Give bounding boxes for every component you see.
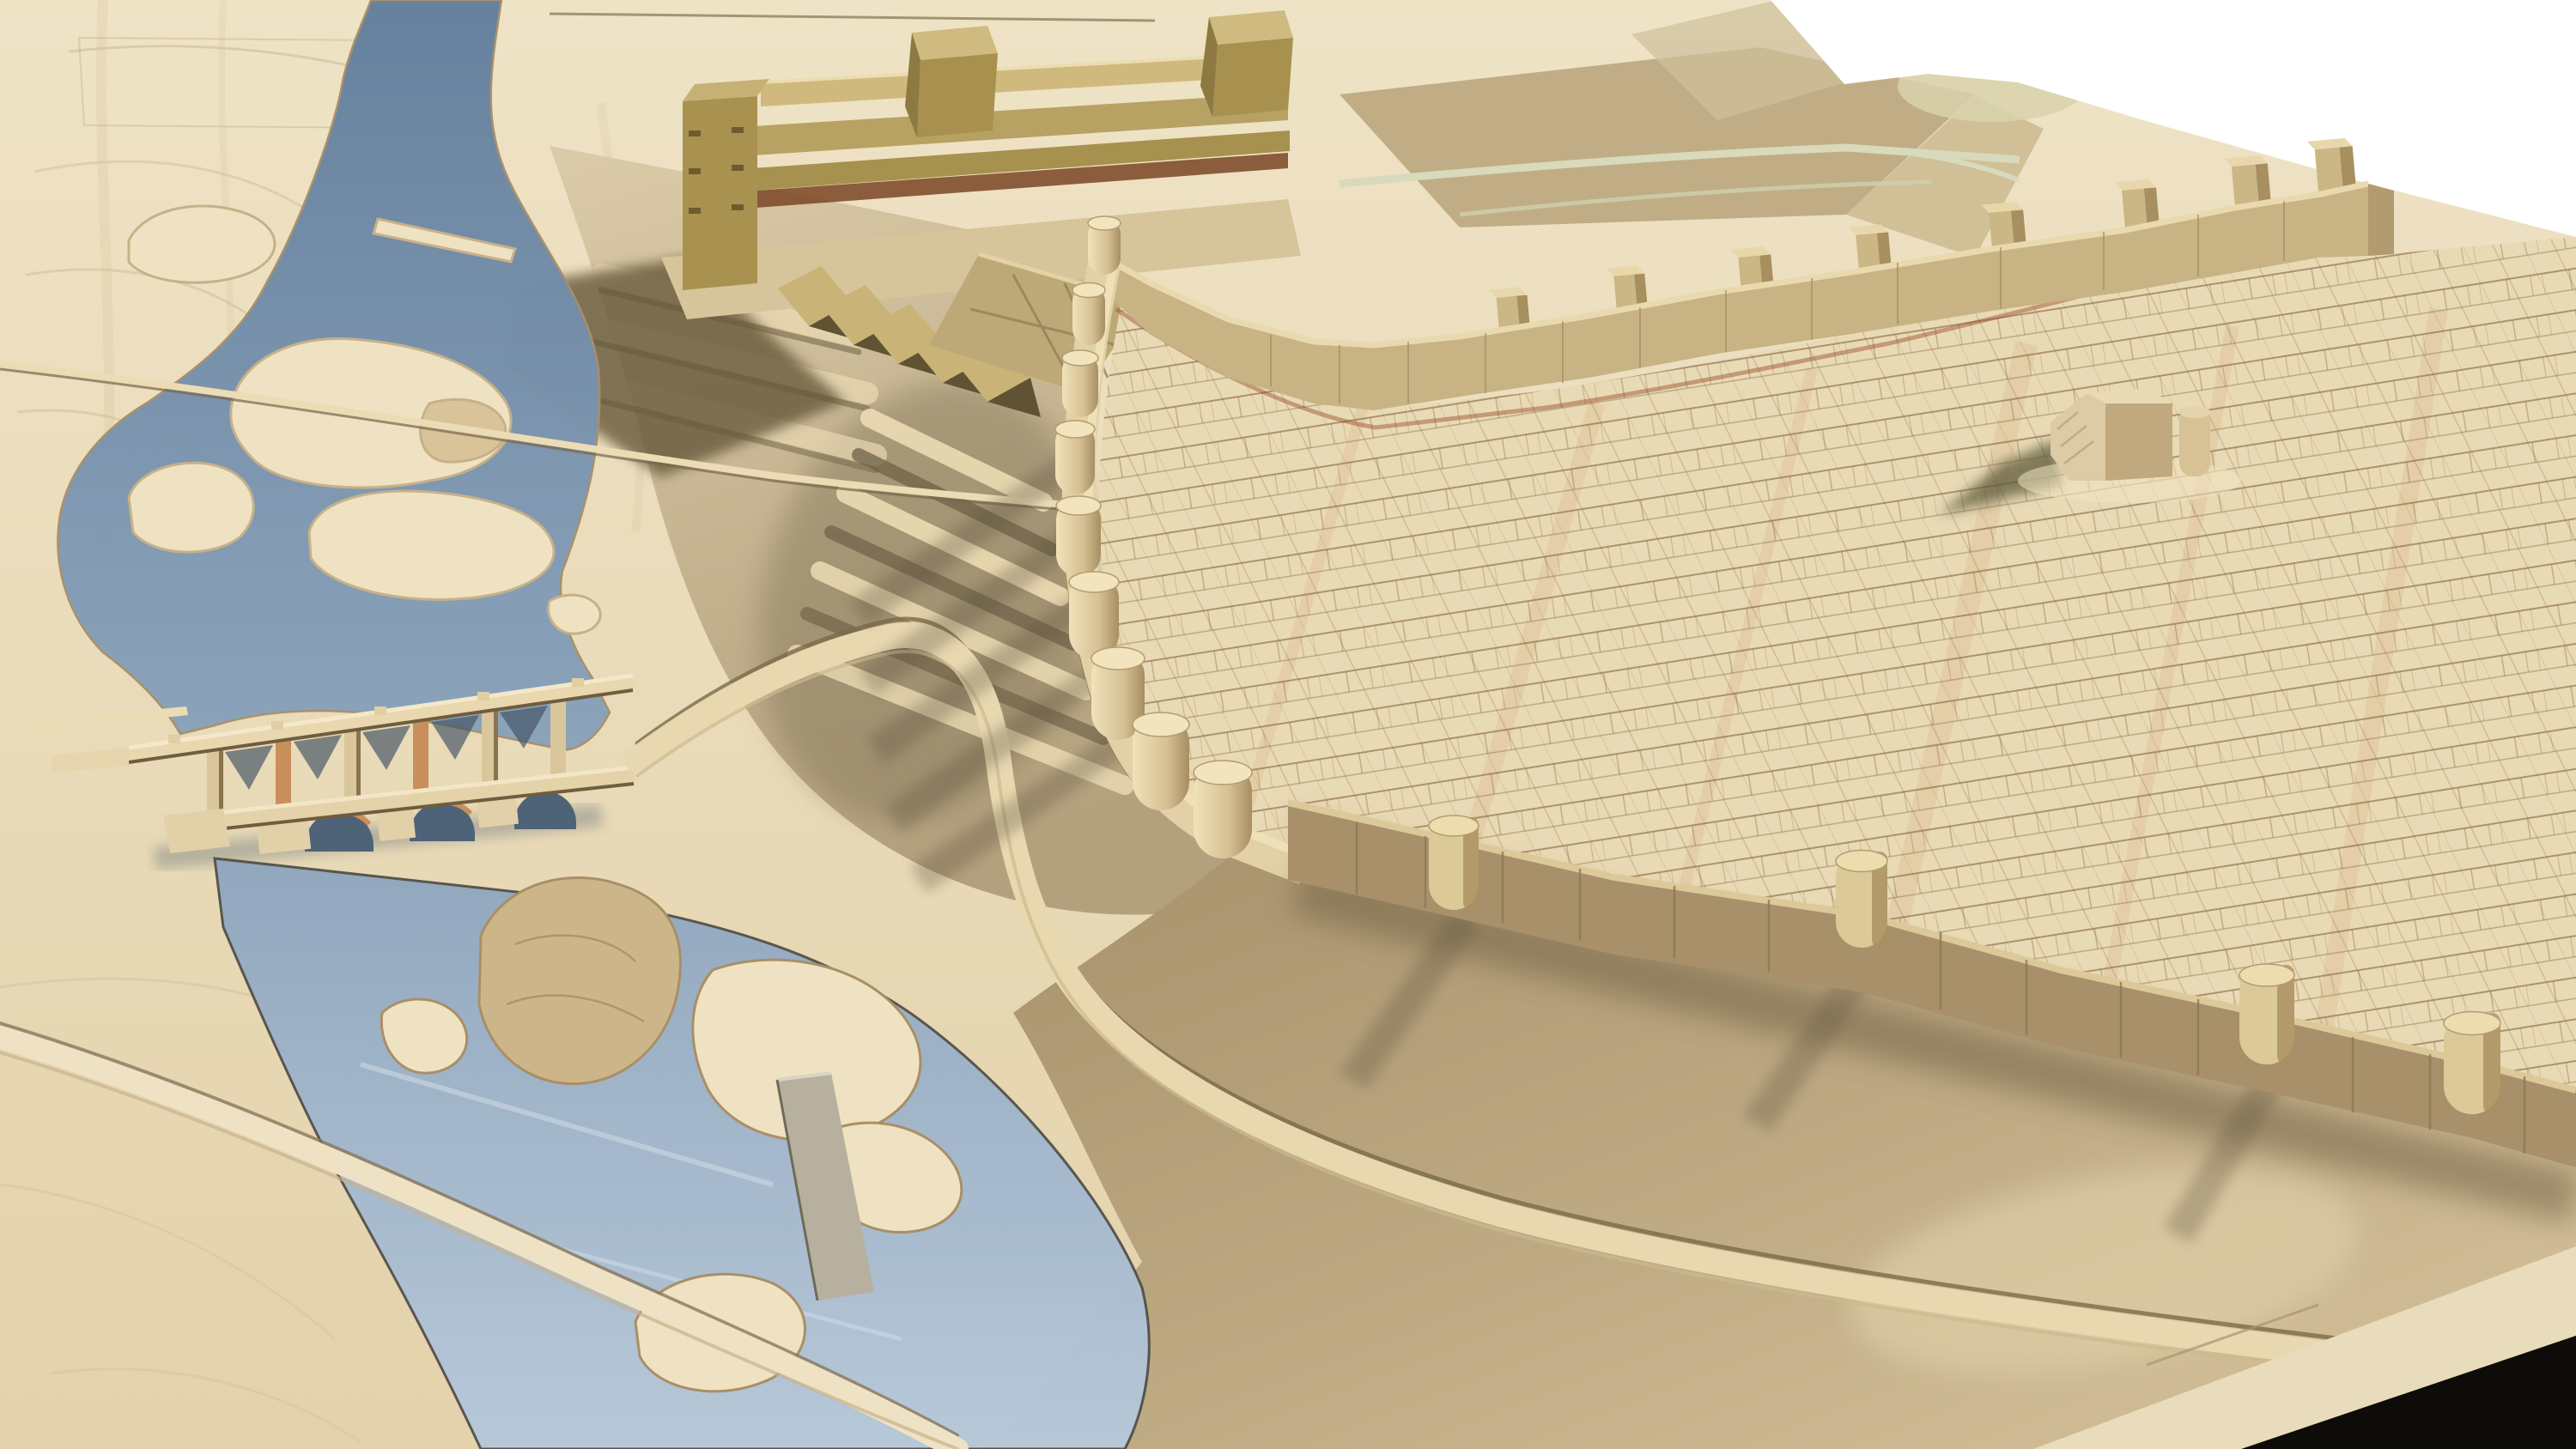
building-tower [905, 26, 998, 137]
building-block [683, 96, 757, 290]
model-photo [0, 0, 2576, 1449]
building-tower [1200, 10, 1293, 117]
